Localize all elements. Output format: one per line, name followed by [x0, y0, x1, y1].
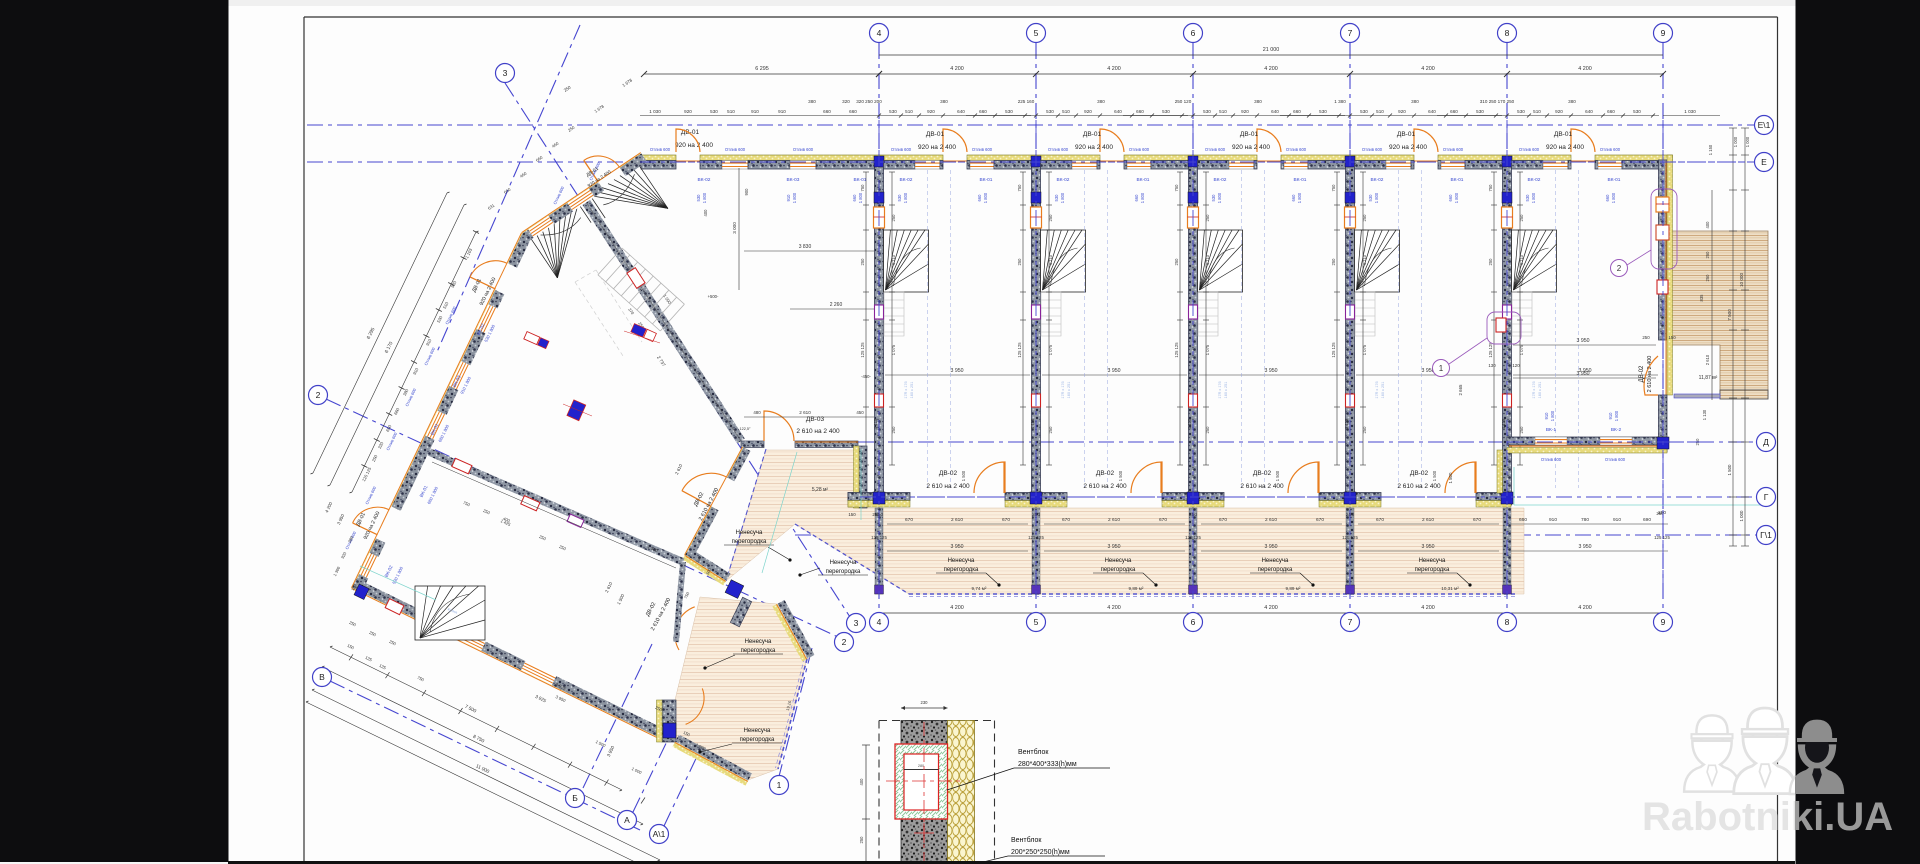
svg-text:4 200: 4 200: [950, 605, 964, 611]
svg-text:310 250 170 250: 310 250 170 250: [1480, 99, 1515, 104]
svg-text:ДВ-01: ДВ-01: [1240, 131, 1259, 138]
svg-text:920: 920: [1084, 109, 1092, 114]
svg-text:1 800: 1 800: [1217, 192, 1222, 203]
svg-text:Е\1: Е\1: [1758, 120, 1771, 130]
svg-text:ДВ-02: ДВ-02: [1639, 365, 1645, 382]
svg-text:1 800: 1 800: [1611, 192, 1616, 203]
svg-text:530: 530: [1203, 109, 1211, 114]
svg-text:660: 660: [979, 109, 987, 114]
svg-text:160 x 251: 160 x 251: [1538, 382, 1542, 399]
svg-text:Ненесуча: Ненесуча: [744, 728, 771, 734]
svg-text:1 500: 1 500: [1432, 470, 1437, 481]
svg-text:1 800: 1 800: [1614, 410, 1619, 421]
svg-text:3 950: 3 950: [1422, 544, 1435, 550]
svg-text:3: 3: [854, 618, 859, 628]
svg-text:Ненесуча: Ненесуча: [830, 560, 857, 566]
svg-text:125 125: 125 125: [1185, 535, 1201, 540]
svg-text:Отлив 600: Отлив 600: [1048, 147, 1069, 152]
svg-text:4 415: 4 415: [1344, 418, 1349, 430]
svg-text:перегородка: перегородка: [740, 737, 775, 743]
svg-text:Г: Г: [1764, 492, 1769, 502]
svg-text:Отлив 600: Отлив 600: [1605, 457, 1626, 462]
svg-text:660: 660: [1293, 109, 1301, 114]
svg-text:125 125: 125 125: [860, 342, 865, 358]
svg-text:А\1: А\1: [653, 829, 666, 839]
svg-text:Отлив 600: Отлив 600: [1600, 147, 1621, 152]
svg-text:1 380: 1 380: [1334, 99, 1346, 104]
svg-text:3 950: 3 950: [1108, 544, 1121, 550]
svg-text:ВК-03: ВК-03: [787, 177, 800, 183]
svg-text:10 000: 10 000: [1739, 273, 1744, 287]
svg-text:125 125: 125 125: [1488, 342, 1493, 358]
svg-text:В: В: [319, 672, 325, 682]
svg-text:480: 480: [753, 410, 761, 415]
svg-text:4 415: 4 415: [873, 418, 878, 430]
svg-text:2 610 на 2 400: 2 610 на 2 400: [1240, 483, 1284, 490]
svg-text:2 610 на 2 400: 2 610 на 2 400: [1083, 483, 1127, 490]
svg-text:2: 2: [842, 637, 847, 647]
svg-text:Ненесуча: Ненесуча: [1262, 558, 1289, 564]
svg-text:150: 150: [1668, 335, 1676, 340]
svg-text:920: 920: [1555, 109, 1563, 114]
svg-text:530: 530: [696, 194, 701, 202]
svg-text:920: 920: [1241, 109, 1249, 114]
svg-text:7: 7: [1348, 28, 1353, 38]
svg-text:920: 920: [1398, 109, 1406, 114]
svg-text:920: 920: [927, 109, 935, 114]
svg-text:380: 380: [1568, 99, 1576, 104]
svg-text:530: 530: [1211, 194, 1216, 202]
svg-text:530: 530: [1633, 109, 1641, 114]
svg-text:510: 510: [1376, 109, 1384, 114]
svg-text:125 125: 125 125: [1654, 535, 1670, 540]
svg-text:280*400*333(h)мм: 280*400*333(h)мм: [1018, 761, 1077, 768]
svg-text:Отлив 600: Отлив 600: [972, 147, 993, 152]
svg-text:17R x 176: 17R x 176: [1375, 381, 1379, 398]
svg-text:1 800: 1 800: [1550, 410, 1555, 421]
svg-text:670: 670: [1219, 517, 1227, 523]
svg-text:910: 910: [751, 109, 759, 114]
svg-text:ДВ-02: ДВ-02: [1253, 470, 1272, 477]
svg-text:1 800: 1 800: [1531, 192, 1536, 203]
svg-text:9: 9: [1661, 28, 1666, 38]
svg-text:530: 530: [1162, 109, 1170, 114]
svg-text:660: 660: [1291, 194, 1296, 202]
svg-text:750: 750: [1174, 184, 1179, 192]
svg-text:380: 380: [1411, 99, 1419, 104]
svg-text:1 800: 1 800: [983, 192, 988, 203]
svg-text:6 295: 6 295: [755, 66, 769, 72]
svg-text:ДВ-01: ДВ-01: [1083, 131, 1102, 138]
svg-text:ДВ-01: ДВ-01: [1554, 131, 1573, 138]
svg-text:125 125: 125 125: [1331, 342, 1336, 358]
svg-text:1 000: 1 000: [1745, 136, 1750, 147]
svg-text:1 500: 1 500: [961, 470, 966, 481]
svg-text:3 000: 3 000: [732, 222, 737, 234]
svg-text:4 200: 4 200: [1107, 66, 1121, 72]
svg-text:660: 660: [849, 109, 857, 114]
svg-text:380: 380: [940, 99, 948, 104]
svg-text:3 950: 3 950: [1265, 368, 1278, 374]
svg-text:160 x 251: 160 x 251: [910, 382, 914, 399]
svg-text:ВК-01: ВК-01: [1137, 177, 1150, 183]
svg-text:1 000: 1 000: [1733, 136, 1738, 147]
svg-text:Отлив 600: Отлив 600: [725, 147, 746, 152]
svg-text:1 000: 1 000: [1739, 510, 1744, 522]
svg-text:17R x 176: 17R x 176: [1061, 381, 1065, 398]
svg-text:125 125: 125 125: [1028, 535, 1044, 540]
svg-text:2 260: 2 260: [830, 302, 843, 308]
svg-text:ВК-02: ВК-02: [1214, 177, 1227, 183]
svg-text:660: 660: [823, 109, 831, 114]
svg-text:1 800: 1 800: [1297, 192, 1302, 203]
svg-text:160 x 251: 160 x 251: [1381, 382, 1385, 399]
svg-text:510: 510: [1219, 109, 1227, 114]
svg-text:5: 5: [1034, 617, 1039, 627]
svg-text:Отлив 600: Отлив 600: [1519, 147, 1540, 152]
svg-text:2 610: 2 610: [1705, 354, 1710, 365]
svg-text:670: 670: [1316, 517, 1324, 523]
svg-text:150: 150: [848, 512, 856, 517]
svg-text:8: 8: [1505, 28, 1510, 38]
svg-text:17R x 176: 17R x 176: [904, 381, 908, 398]
svg-text:320 250 200: 320 250 200: [856, 99, 882, 104]
svg-text:2 610: 2 610: [1265, 517, 1277, 523]
svg-text:900: 900: [744, 188, 749, 196]
svg-text:250: 250: [1017, 258, 1022, 266]
svg-text:2 610: 2 610: [799, 410, 811, 415]
svg-text:4 200: 4 200: [1107, 605, 1121, 611]
svg-text:910: 910: [1544, 412, 1549, 420]
svg-text:Отлив 600: Отлив 600: [1129, 147, 1150, 152]
svg-text:21 000: 21 000: [1263, 47, 1280, 53]
svg-text:Ненесуча: Ненесуча: [1419, 558, 1446, 564]
svg-text:6: 6: [1191, 28, 1196, 38]
svg-text:1 110: 1 110: [1205, 254, 1210, 265]
svg-text:250: 250: [1705, 274, 1710, 282]
svg-text:530: 530: [1476, 109, 1484, 114]
svg-text:910: 910: [778, 109, 786, 114]
svg-text:перегородка: перегородка: [826, 569, 861, 575]
svg-text:Вентблок: Вентблок: [1011, 836, 1042, 844]
svg-text:250: 250: [1519, 426, 1524, 434]
svg-text:920: 920: [684, 109, 692, 114]
svg-text:250: 250: [1519, 214, 1524, 222]
svg-text:9,89 м²: 9,89 м²: [1286, 586, 1301, 591]
svg-text:1 500: 1 500: [1727, 464, 1732, 476]
svg-text:530: 530: [889, 109, 897, 114]
svg-text:3 830: 3 830: [799, 244, 812, 250]
svg-text:230: 230: [921, 700, 929, 705]
svg-text:690: 690: [1643, 517, 1651, 523]
svg-text:1: 1: [1439, 364, 1444, 373]
svg-text:1 075: 1 075: [1519, 344, 1524, 355]
svg-text:920 на 2 400: 920 на 2 400: [1389, 144, 1427, 151]
svg-text:Отлив 600: Отлив 600: [650, 147, 671, 152]
svg-text:ВК-01: ВК-01: [1294, 177, 1307, 183]
svg-text:Отлив 600: Отлив 600: [793, 147, 814, 152]
svg-text:10,31 м²: 10,31 м²: [1441, 586, 1459, 591]
svg-text:750: 750: [1488, 184, 1493, 192]
svg-text:Ненесуча: Ненесуча: [1105, 558, 1132, 564]
svg-text:1 500: 1 500: [1118, 470, 1123, 481]
svg-text:910: 910: [1549, 517, 1557, 523]
svg-text:ДВ-02: ДВ-02: [1096, 470, 1115, 477]
svg-text:1 110: 1 110: [1048, 254, 1053, 265]
svg-text:250: 250: [1642, 335, 1650, 340]
svg-text:9,74 м²: 9,74 м²: [972, 586, 987, 591]
svg-text:3 950: 3 950: [1577, 371, 1590, 377]
svg-text:670: 670: [1376, 517, 1384, 523]
svg-text:Отлив 600: Отлив 600: [1362, 147, 1383, 152]
svg-text:640: 640: [957, 109, 965, 114]
svg-text:920 на 2 400: 920 на 2 400: [675, 142, 713, 149]
svg-text:510: 510: [905, 109, 913, 114]
svg-text:660: 660: [1519, 517, 1527, 523]
svg-text:9,89 м²: 9,89 м²: [1129, 586, 1144, 591]
svg-text:Б: Б: [572, 793, 578, 803]
svg-text:9: 9: [1661, 617, 1666, 627]
svg-text:125 125: 125 125: [871, 535, 887, 540]
svg-text:510: 510: [1533, 109, 1541, 114]
svg-text:380: 380: [1097, 99, 1105, 104]
svg-text:120: 120: [1512, 363, 1520, 368]
svg-text:1 800: 1 800: [1060, 192, 1065, 203]
svg-text:4 200: 4 200: [1421, 605, 1435, 611]
svg-text:640: 640: [1114, 109, 1122, 114]
svg-text:530: 530: [1054, 194, 1059, 202]
svg-text:530: 530: [1319, 109, 1327, 114]
svg-text:6: 6: [1191, 617, 1196, 627]
svg-text:160 x 251: 160 x 251: [1224, 382, 1228, 399]
svg-text:2 665: 2 665: [1458, 384, 1463, 396]
svg-text:320: 320: [842, 99, 850, 104]
svg-text:4 200: 4 200: [1578, 66, 1592, 72]
svg-text:250: 250: [1205, 426, 1210, 434]
svg-text:ДВ-01: ДВ-01: [1397, 131, 1416, 138]
svg-text:Ненесуча: Ненесуча: [736, 530, 763, 536]
svg-text:+500-: +500-: [708, 294, 719, 299]
svg-text:835: 835: [1699, 294, 1704, 302]
svg-text:ВК-2: ВК-2: [1611, 427, 1622, 433]
svg-text:Ненесуча: Ненесуча: [948, 558, 975, 564]
svg-text:1 110: 1 110: [891, 254, 896, 265]
svg-text:Вентблок: Вентблок: [1018, 748, 1049, 756]
svg-text:530: 530: [1046, 109, 1054, 114]
svg-text:ДВ-02: ДВ-02: [939, 470, 958, 477]
svg-text:-450-: -450-: [861, 374, 871, 379]
svg-text:перегородка: перегородка: [732, 539, 767, 545]
svg-text:1 130: 1 130: [1702, 409, 1707, 420]
svg-text:1 030: 1 030: [1684, 109, 1696, 114]
svg-text:250: 250: [860, 258, 865, 266]
svg-text:7: 7: [1348, 617, 1353, 627]
svg-text:250: 250: [859, 836, 864, 844]
svg-text:130: 130: [1488, 363, 1496, 368]
svg-text:660: 660: [852, 194, 857, 202]
svg-text:640: 640: [1271, 109, 1279, 114]
svg-text:3: 3: [503, 68, 508, 78]
svg-text:920 на 2 400: 920 на 2 400: [918, 144, 956, 151]
svg-text:250: 250: [1488, 258, 1493, 266]
svg-text:Д: Д: [1763, 437, 1769, 447]
svg-text:3 950: 3 950: [1108, 368, 1121, 374]
svg-text:250: 250: [1362, 426, 1367, 434]
svg-text:4: 4: [877, 28, 882, 38]
svg-text:ВК-01: ВК-01: [980, 177, 993, 183]
svg-text:Е: Е: [1761, 157, 1767, 167]
svg-text:640: 640: [1585, 109, 1593, 114]
svg-text:670: 670: [1002, 517, 1010, 523]
svg-text:1 800: 1 800: [1140, 192, 1145, 203]
svg-text:Г\1: Г\1: [1760, 530, 1772, 540]
svg-text:4 200: 4 200: [1264, 66, 1278, 72]
svg-text:3 950: 3 950: [1579, 544, 1592, 550]
svg-text:1 075: 1 075: [1048, 344, 1053, 355]
svg-text:2 610: 2 610: [951, 517, 963, 523]
svg-text:1 800: 1 800: [792, 192, 797, 203]
svg-text:670: 670: [905, 517, 913, 523]
svg-text:1 110: 1 110: [1519, 254, 1524, 265]
svg-text:250: 250: [1174, 258, 1179, 266]
svg-text:ВК-02: ВК-02: [698, 177, 711, 183]
svg-text:перегородка: перегородка: [1258, 567, 1293, 573]
svg-text:3 950: 3 950: [951, 544, 964, 550]
svg-text:250: 250: [1205, 214, 1210, 222]
svg-text:125 125: 125 125: [1342, 535, 1358, 540]
svg-text:400: 400: [703, 209, 708, 217]
svg-text:660: 660: [1607, 109, 1615, 114]
svg-text:530: 530: [1517, 109, 1525, 114]
svg-text:530: 530: [1360, 109, 1368, 114]
svg-text:670: 670: [1473, 517, 1481, 523]
svg-text:2: 2: [316, 390, 321, 400]
svg-text:125 125: 125 125: [1017, 342, 1022, 358]
svg-text:200*250*250(h)мм: 200*250*250(h)мм: [1011, 849, 1070, 856]
svg-text:530: 530: [710, 109, 718, 114]
svg-text:8: 8: [1505, 617, 1510, 627]
svg-text:160 x 251: 160 x 251: [1067, 382, 1071, 399]
svg-text:4 200: 4 200: [1421, 66, 1435, 72]
svg-text:920 на 2 400: 920 на 2 400: [1232, 144, 1270, 151]
svg-text:ВК-1: ВК-1: [1546, 427, 1557, 433]
svg-text:1 110: 1 110: [1362, 254, 1367, 265]
svg-text:2 610 на 2 400: 2 610 на 2 400: [796, 428, 840, 435]
svg-text:ДВ-02: ДВ-02: [1410, 470, 1429, 477]
svg-text:перегородка: перегородка: [741, 648, 776, 654]
svg-text:5: 5: [1034, 28, 1039, 38]
svg-text:250: 250: [1048, 214, 1053, 222]
svg-text:250: 250: [1048, 426, 1053, 434]
svg-text:250: 250: [1331, 258, 1336, 266]
svg-text:5,28 м²: 5,28 м²: [812, 487, 829, 493]
svg-text:перегородка: перегородка: [944, 567, 979, 573]
svg-text:Отлив 600: Отлив 600: [1541, 457, 1562, 462]
svg-text:910: 910: [1613, 517, 1621, 523]
svg-text:640: 640: [1428, 109, 1436, 114]
svg-text:1 800: 1 800: [1454, 192, 1459, 203]
svg-text:Отлив 600: Отлив 600: [1286, 147, 1307, 152]
svg-text:ВК-02: ВК-02: [1371, 177, 1384, 183]
svg-text:2 610: 2 610: [1108, 517, 1120, 523]
svg-text:660: 660: [1448, 194, 1453, 202]
svg-text:122,5°: 122,5°: [739, 427, 751, 431]
svg-text:1 800: 1 800: [858, 192, 863, 203]
svg-text:225 160: 225 160: [1018, 99, 1035, 104]
svg-text:7 500: 7 500: [1727, 309, 1732, 321]
svg-text:660: 660: [1450, 109, 1458, 114]
svg-text:2 610: 2 610: [1422, 517, 1434, 523]
svg-text:1 500: 1 500: [1448, 472, 1453, 484]
svg-text:4 200: 4 200: [1578, 605, 1592, 611]
svg-text:250 120: 250 120: [1175, 99, 1192, 104]
svg-text:17R x 176: 17R x 176: [1218, 381, 1222, 398]
svg-text:ВК-01: ВК-01: [1451, 177, 1464, 183]
svg-text:3 950: 3 950: [951, 368, 964, 374]
svg-text:3 950: 3 950: [1265, 544, 1278, 550]
svg-text:380: 380: [1254, 99, 1262, 104]
svg-text:4 415: 4 415: [1187, 418, 1192, 430]
svg-text:750: 750: [860, 184, 865, 192]
svg-text:1 150: 1 150: [1708, 144, 1713, 155]
svg-text:ВК-02: ВК-02: [1057, 177, 1070, 183]
svg-text:250: 250: [1705, 251, 1710, 259]
svg-text:ВК-01: ВК-01: [1608, 177, 1621, 183]
svg-text:530: 530: [1005, 109, 1013, 114]
svg-text:4 200: 4 200: [1264, 605, 1278, 611]
svg-text:Отлив 600: Отлив 600: [891, 147, 912, 152]
svg-text:1 800: 1 800: [702, 192, 707, 203]
svg-text:450: 450: [856, 410, 864, 415]
svg-text:1 800: 1 800: [903, 192, 908, 203]
svg-text:125 125: 125 125: [1174, 342, 1179, 358]
svg-text:2 610 на 2 400: 2 610 на 2 400: [926, 483, 970, 490]
svg-text:4 415: 4 415: [1030, 418, 1035, 430]
svg-text:250: 250: [1362, 214, 1367, 222]
svg-text:перегородка: перегородка: [1101, 567, 1136, 573]
svg-text:1 075: 1 075: [891, 344, 896, 355]
svg-text:250: 250: [891, 426, 896, 434]
svg-text:ВК-02: ВК-02: [1528, 177, 1541, 183]
svg-text:660: 660: [1136, 109, 1144, 114]
svg-text:11,87 м²: 11,87 м²: [1699, 375, 1718, 381]
svg-text:400: 400: [1705, 221, 1710, 229]
svg-text:670: 670: [1159, 517, 1167, 523]
svg-text:920 на 2 400: 920 на 2 400: [1075, 144, 1113, 151]
svg-text:ВК-02: ВК-02: [900, 177, 913, 183]
svg-text:920 на 2 400: 920 на 2 400: [1546, 144, 1584, 151]
svg-text:ДВ-01: ДВ-01: [926, 131, 945, 138]
svg-text:перегородка: перегородка: [1415, 567, 1450, 573]
svg-text:4 415: 4 415: [1501, 418, 1506, 430]
svg-text:910: 910: [1608, 412, 1613, 420]
svg-text:1 075: 1 075: [1205, 344, 1210, 355]
svg-text:4 200: 4 200: [950, 66, 964, 72]
svg-text:Отлив 600: Отлив 600: [1443, 147, 1464, 152]
svg-text:2: 2: [1617, 264, 1622, 273]
svg-text:Отлив 600: Отлив 600: [1205, 147, 1226, 152]
svg-text:660: 660: [1134, 194, 1139, 202]
svg-text:Ненесуча: Ненесуча: [745, 639, 772, 645]
svg-text:2 610 на 2 400: 2 610 на 2 400: [1647, 356, 1653, 393]
svg-text:250: 250: [891, 214, 896, 222]
svg-text:1 075: 1 075: [1362, 344, 1367, 355]
svg-text:670: 670: [1062, 517, 1070, 523]
svg-text:1 500: 1 500: [1275, 470, 1280, 481]
svg-text:1: 1: [777, 780, 782, 790]
svg-text:400: 400: [859, 778, 864, 786]
svg-text:510: 510: [727, 109, 735, 114]
